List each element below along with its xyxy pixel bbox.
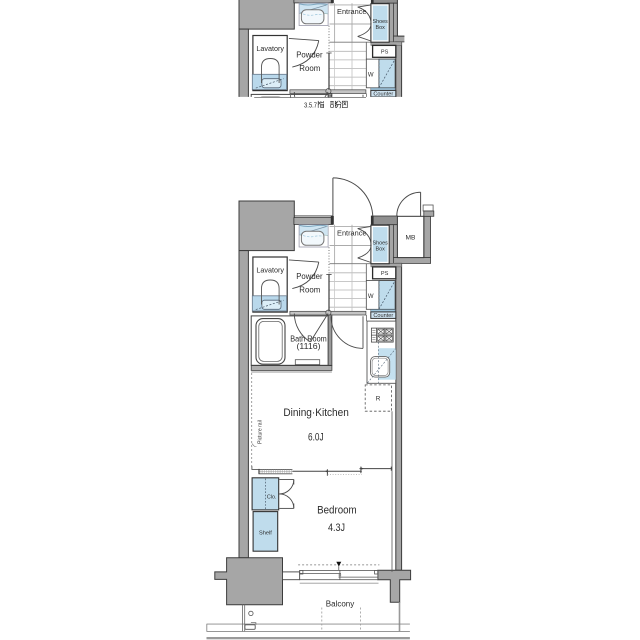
svg-text:Shelf: Shelf (259, 530, 272, 536)
svg-text:R: R (376, 396, 381, 403)
svg-text:(1116): (1116) (297, 342, 321, 351)
svg-text:Powder: Powder (296, 272, 323, 281)
svg-text:Bedroom: Bedroom (317, 505, 357, 517)
svg-text:Room: Room (299, 286, 320, 295)
svg-text:6.0J: 6.0J (308, 432, 324, 444)
svg-text:Balcony: Balcony (326, 599, 354, 608)
svg-text:W: W (368, 294, 374, 300)
svg-text:PS: PS (381, 271, 389, 277)
svg-text:Counter: Counter (373, 313, 393, 319)
svg-text:Dining·Kitchen: Dining·Kitchen (283, 407, 348, 419)
svg-text:MB: MB (406, 235, 416, 242)
svg-text:Picture rail: Picture rail (258, 420, 264, 444)
svg-text:Lavatory: Lavatory (256, 266, 284, 275)
svg-text:4.3J: 4.3J (328, 522, 345, 534)
svg-text:Clo.: Clo. (267, 494, 277, 500)
svg-text:Entrance: Entrance (337, 229, 367, 238)
svg-text:3.5.7: 3.5.7 (304, 103, 317, 110)
svg-text:Box: Box (376, 247, 386, 253)
